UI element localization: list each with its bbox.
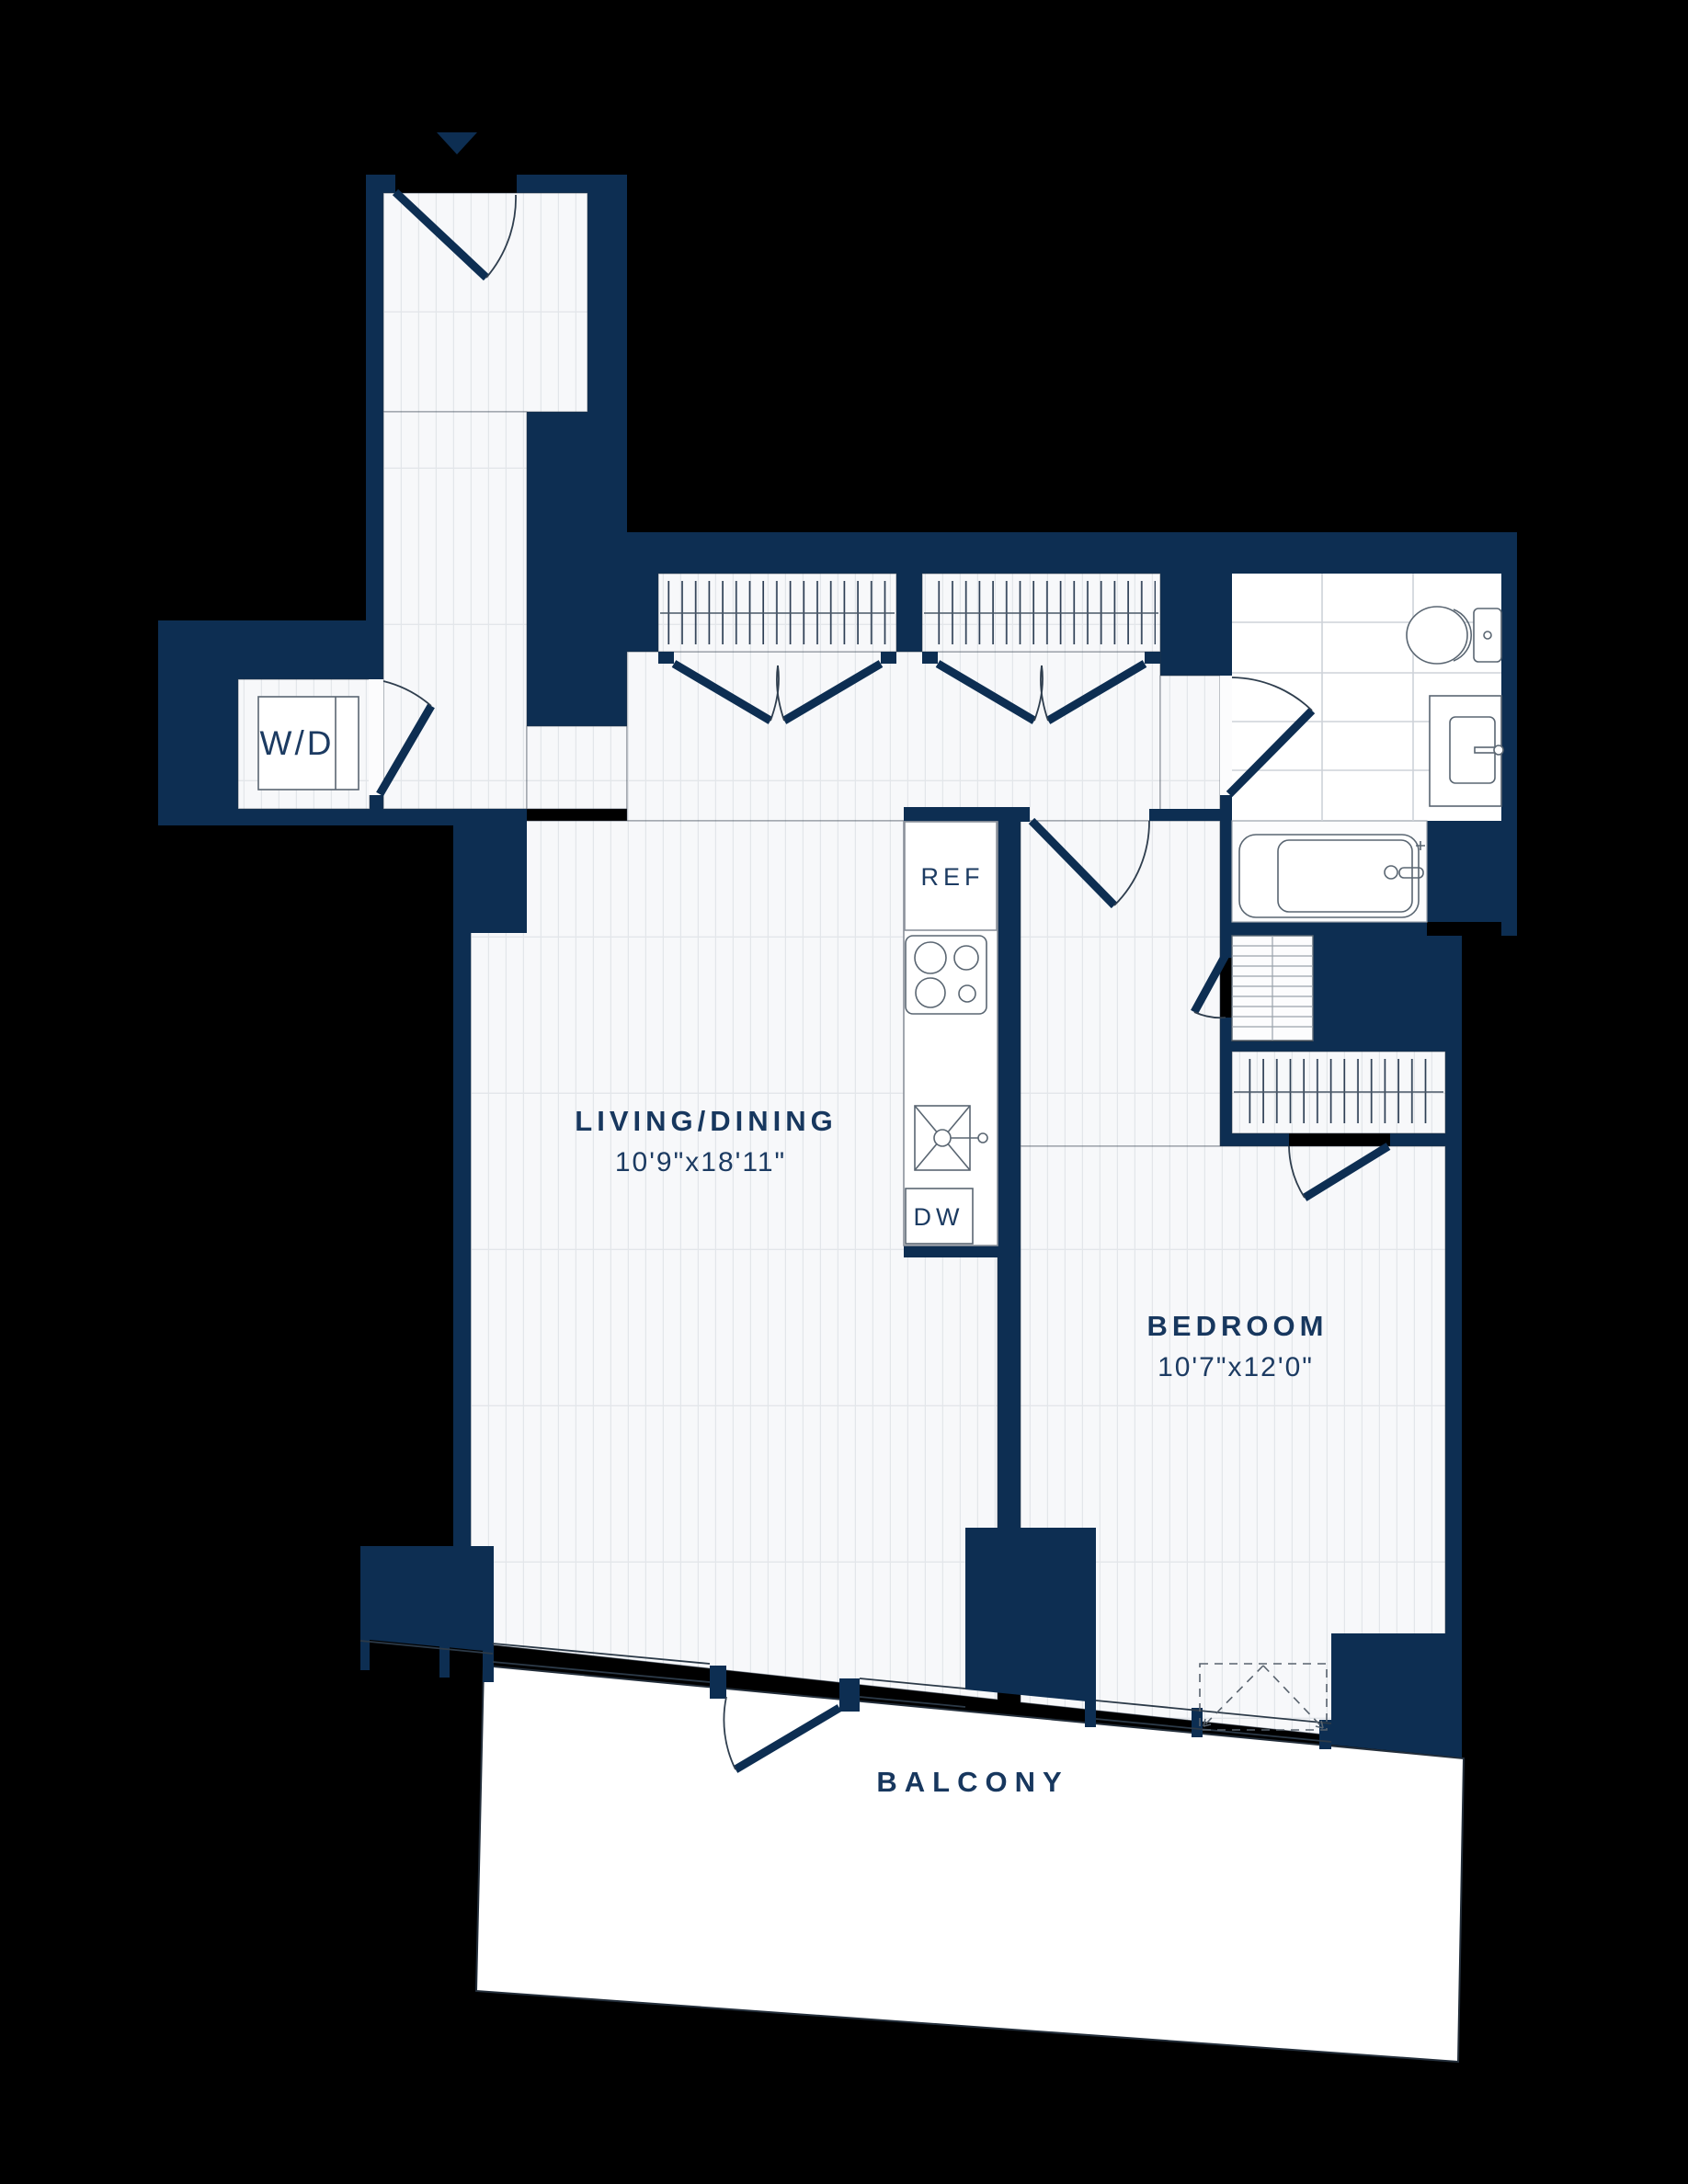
hanger-icons [1239,1059,1438,1123]
wall-segment [1220,1133,1289,1146]
wall-segment [517,175,627,193]
wall-segment [526,532,1517,574]
closet-jamb [658,652,674,664]
living-west-wall [453,933,471,1558]
south-pier-right [1331,1633,1462,1757]
toilet-icon [1407,607,1501,664]
nw-pier [453,809,527,933]
wall-segment [1160,574,1232,676]
closet-jamb [922,652,938,664]
kitchen-bottom-wall [904,1246,1021,1257]
closet-jamb [881,652,896,664]
wd-door-opening [369,679,383,795]
wall-segment [1232,922,1427,936]
wall-segment [1220,1052,1232,1146]
wall-segment [1390,1133,1462,1146]
vanity-sink-icon [1430,696,1503,806]
bedroom-door-wall [1149,809,1230,821]
hallway-floor [627,652,1160,821]
parapet-post [439,1646,450,1678]
wall-segment [1501,532,1517,936]
dishwasher-label: DW [914,1203,964,1231]
wall-segment [587,193,627,414]
wall-segment [1220,1041,1462,1052]
wall-segment [366,175,395,193]
window-mullion [1192,1708,1203,1737]
wall-segment [1445,1146,1462,1643]
balcony-door-jamb [839,1678,860,1712]
bathtub-icon [1239,835,1425,917]
wall-segment [998,821,1021,1528]
balcony-door-jamb [710,1666,726,1699]
bathroom-door-opening [1220,676,1232,795]
floorplan-svg: REF DW [0,0,1688,2184]
living-room-dims: 10'9"x18'11" [615,1147,786,1177]
parapet-post [360,1639,370,1670]
entry-corridor-floor [383,193,587,412]
south-pier-left [360,1546,494,1652]
corridor-living-opening-floor [527,726,627,809]
hallway-floor [1160,676,1220,821]
wall-segment [896,574,922,652]
bedroom-label: BEDROOM [1147,1310,1329,1342]
wall-segment [382,809,453,825]
entry-arrow-icon [437,132,477,154]
wall-segment [1427,821,1501,922]
bedroom-floor [1021,821,1220,1146]
parapet-post [483,1651,494,1682]
kitchen-top-wall [904,807,1030,822]
closet-jamb [1145,652,1160,664]
cooktop [906,936,987,1014]
window-mullion [1319,1720,1331,1749]
refrigerator-label: REF [921,863,985,891]
wall-segment [1313,936,1462,1041]
window-mullion [1085,1698,1096,1727]
balcony-label: BALCONY [876,1766,1068,1798]
bedroom-dims: 10'7"x12'0" [1158,1352,1314,1382]
south-pier-middle [965,1528,1096,1702]
floorplan-canvas: REF DW [0,0,1688,2184]
kitchen: REF DW [904,822,998,1246]
washer-dryer-label: W/D [260,724,335,762]
living-room-label: LIVING/DINING [575,1105,837,1137]
wall-segment [1445,1052,1462,1146]
